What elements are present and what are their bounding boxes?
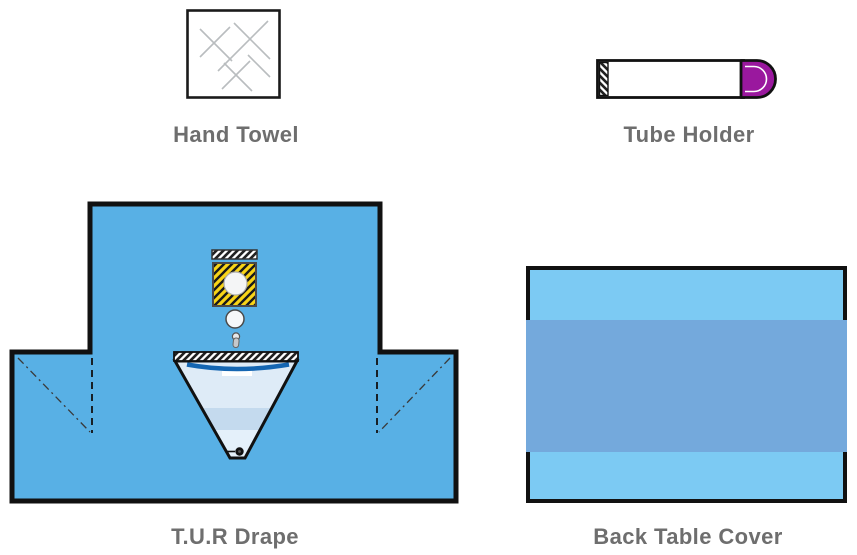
tube-clip-icon xyxy=(232,333,239,348)
drape-round-opening xyxy=(226,310,244,328)
pouch-adhesive-strip xyxy=(174,352,298,361)
drape-aperture-window xyxy=(213,263,256,306)
drape-pack-diagram: Hand Towel Tube Holder T.U.R Drape Back … xyxy=(0,0,857,555)
tur-drape-illustration xyxy=(8,200,460,506)
tube-holder-illustration xyxy=(595,57,781,101)
drape-adhesive-strip xyxy=(212,250,257,259)
tube-holder-label: Tube Holder xyxy=(589,122,789,148)
back-table-cover-reinforced-band xyxy=(526,320,847,452)
hand-towel-label: Hand Towel xyxy=(136,122,336,148)
tube-holder-adhesive-strip xyxy=(600,63,609,96)
back-table-cover-illustration xyxy=(526,266,847,503)
hand-towel-illustration xyxy=(186,9,281,99)
tube-holder-body xyxy=(598,61,744,98)
back-table-cover-label: Back Table Cover xyxy=(558,524,818,550)
aperture-hole xyxy=(224,272,247,295)
tur-drape-label: T.U.R Drape xyxy=(135,524,335,550)
